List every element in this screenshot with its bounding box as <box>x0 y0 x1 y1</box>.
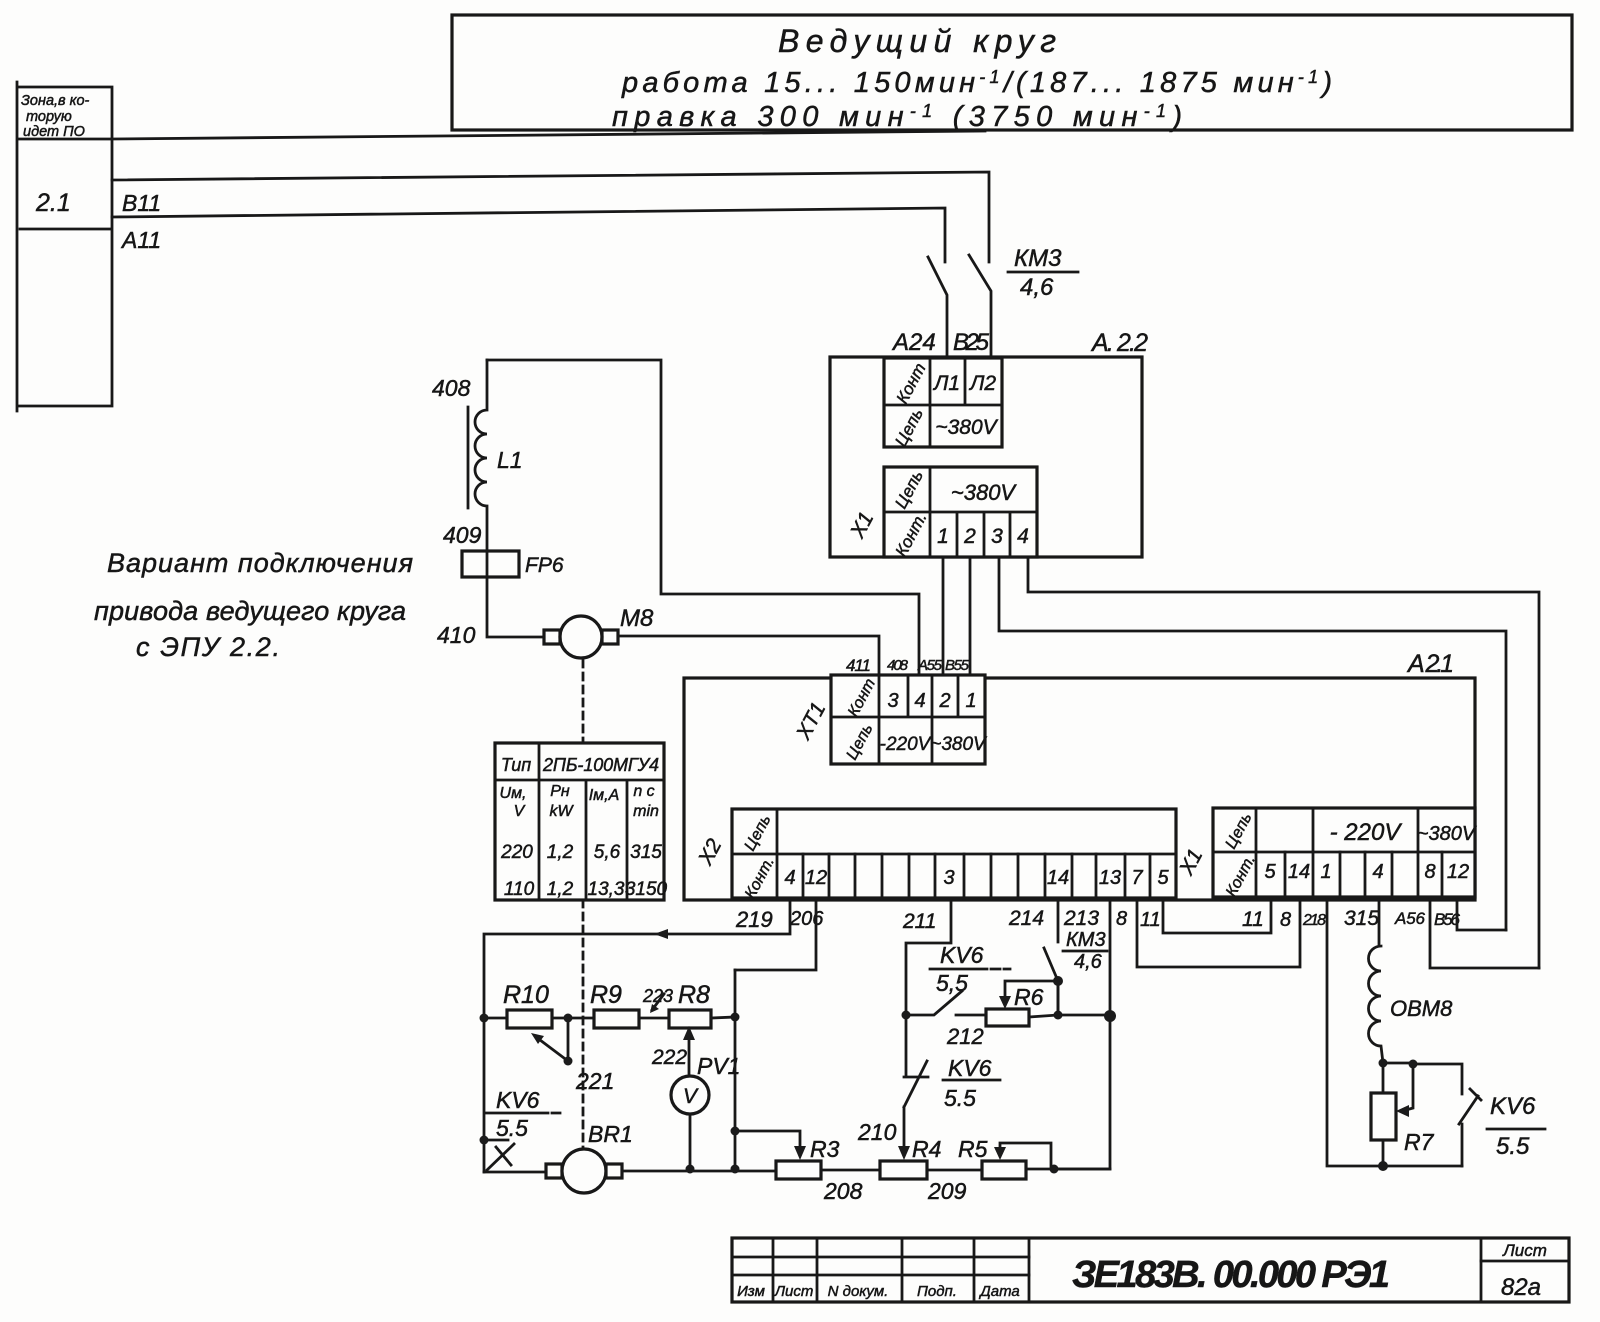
svg-text:ЗЕ183В. 00.000 РЭ1: ЗЕ183В. 00.000 РЭ1 <box>1072 1254 1390 1296</box>
svg-text:3: 3 <box>887 690 898 712</box>
svg-text:FP6: FP6 <box>525 554 564 577</box>
svg-text:4: 4 <box>914 690 925 712</box>
svg-text:n c: n c <box>633 783 654 800</box>
svg-text:KV6: KV6 <box>948 1055 992 1081</box>
svg-text:А. 2.2: А. 2.2 <box>1090 329 1148 357</box>
svg-text:12: 12 <box>805 867 827 889</box>
svg-text:В25: В25 <box>953 329 990 356</box>
svg-text:408: 408 <box>432 375 471 401</box>
svg-text:410: 410 <box>437 622 476 648</box>
svg-text:7: 7 <box>1131 867 1143 889</box>
svg-text:привода ведущего круга: привода ведущего круга <box>94 596 406 626</box>
svg-text:210: 210 <box>857 1119 897 1145</box>
svg-text:Тип: Тип <box>501 755 531 775</box>
svg-text:12: 12 <box>1447 861 1469 883</box>
svg-text:209: 209 <box>927 1178 967 1204</box>
svg-text:4: 4 <box>1017 525 1029 548</box>
svg-text:214: 214 <box>1008 907 1044 930</box>
svg-text:3: 3 <box>943 867 954 889</box>
svg-text:221: 221 <box>575 1068 614 1094</box>
svg-text:BR1: BR1 <box>588 1121 633 1147</box>
svg-text:Дата: Дата <box>978 1283 1020 1300</box>
svg-text:2: 2 <box>963 525 976 548</box>
svg-text:1,2: 1,2 <box>547 842 574 863</box>
svg-text:13: 13 <box>1099 867 1121 889</box>
svg-text:Рн: Рн <box>550 783 570 800</box>
svg-text:R4: R4 <box>912 1136 941 1162</box>
svg-text:4: 4 <box>1372 861 1383 883</box>
svg-text:5: 5 <box>1264 861 1276 883</box>
svg-text:1: 1 <box>1320 861 1331 883</box>
svg-text:Uм,: Uм, <box>500 785 527 802</box>
svg-text:R7: R7 <box>1404 1129 1435 1155</box>
svg-text:Л1: Л1 <box>932 372 960 395</box>
svg-text:R3: R3 <box>810 1136 840 1162</box>
svg-text:Изм: Изм <box>737 1283 765 1300</box>
svg-text:3150: 3150 <box>625 879 668 900</box>
svg-text:315: 315 <box>630 842 662 863</box>
svg-text:3: 3 <box>991 525 1003 548</box>
svg-text:А55: А55 <box>917 657 943 674</box>
svg-text:212: 212 <box>946 1024 984 1049</box>
svg-text:206: 206 <box>789 908 824 930</box>
svg-text:8: 8 <box>1116 908 1127 930</box>
svg-text:8: 8 <box>1280 909 1291 931</box>
svg-text:V: V <box>683 1085 699 1108</box>
svg-text:14: 14 <box>1047 867 1069 889</box>
svg-text:М8: М8 <box>620 605 654 632</box>
svg-text:211: 211 <box>902 910 936 933</box>
svg-text:11: 11 <box>1242 908 1264 931</box>
svg-text:Зона,в ко-: Зона,в ко- <box>21 93 90 109</box>
svg-text:1,2: 1,2 <box>547 879 574 900</box>
svg-text:~380V: ~380V <box>1417 823 1477 845</box>
svg-text:2.1: 2.1 <box>35 189 71 217</box>
svg-text:219: 219 <box>735 907 773 932</box>
svg-text:4,6: 4,6 <box>1074 951 1103 973</box>
svg-text:R10: R10 <box>503 981 549 1009</box>
svg-text:kW: kW <box>549 803 574 820</box>
svg-text:Лист: Лист <box>774 1283 814 1300</box>
svg-text:~380V: ~380V <box>951 480 1018 505</box>
svg-text:L1: L1 <box>497 447 523 473</box>
svg-text:1: 1 <box>965 690 976 712</box>
svg-text:11: 11 <box>1140 909 1161 931</box>
svg-text:220: 220 <box>500 842 533 863</box>
svg-text:А56: А56 <box>1394 909 1426 928</box>
svg-text:2: 2 <box>938 690 950 712</box>
svg-text:В11: В11 <box>122 190 161 216</box>
svg-text:Л2: Л2 <box>968 372 996 395</box>
svg-text:409: 409 <box>443 522 482 548</box>
svg-text:R9: R9 <box>590 981 622 1009</box>
svg-text:R5: R5 <box>958 1136 988 1162</box>
svg-text:213: 213 <box>1063 907 1099 930</box>
svg-text:315: 315 <box>1344 907 1379 930</box>
svg-text:208: 208 <box>823 1178 863 1204</box>
svg-text:5,5: 5,5 <box>936 970 968 996</box>
svg-text:PV1: PV1 <box>697 1053 740 1079</box>
svg-text:~380V: ~380V <box>930 734 988 755</box>
svg-text:KV6: KV6 <box>1490 1093 1536 1120</box>
svg-text:В55: В55 <box>945 657 970 674</box>
svg-text:5: 5 <box>1157 867 1169 889</box>
svg-text:110: 110 <box>504 879 535 900</box>
svg-text:А 2.1: А 2.1 <box>1406 650 1454 678</box>
svg-text:13,3: 13,3 <box>588 879 625 900</box>
svg-text:1: 1 <box>937 525 949 548</box>
svg-text:V: V <box>514 803 526 820</box>
svg-text:5.5: 5.5 <box>944 1085 976 1111</box>
svg-text:408: 408 <box>887 657 909 674</box>
svg-text:KV6: KV6 <box>940 942 984 968</box>
svg-text:Вариант подключения: Вариант подключения <box>107 548 413 578</box>
svg-text:А24: А24 <box>891 329 936 356</box>
svg-text:Iм,А: Iм,А <box>589 787 620 804</box>
svg-text:4,6: 4,6 <box>1020 274 1054 301</box>
svg-text:КМ3: КМ3 <box>1066 929 1106 951</box>
svg-text:8: 8 <box>1424 861 1435 883</box>
svg-text:5.5: 5.5 <box>1496 1133 1530 1160</box>
svg-text:R8: R8 <box>678 981 710 1009</box>
svg-text:идет ПО: идет ПО <box>23 124 85 140</box>
svg-text:ОВМ8: ОВМ8 <box>1390 996 1453 1021</box>
svg-text:Подп.: Подп. <box>917 1283 957 1300</box>
svg-text:218: 218 <box>1302 912 1326 929</box>
svg-text:Лист: Лист <box>1502 1241 1547 1260</box>
svg-text:- 220V: - 220V <box>1330 819 1403 846</box>
svg-text:222: 222 <box>651 1046 687 1069</box>
svg-text:KV6: KV6 <box>496 1087 540 1113</box>
svg-text:~380V: ~380V <box>935 416 998 439</box>
svg-text:-220V: -220V <box>880 734 933 755</box>
svg-text:2ПБ-100МГУ4: 2ПБ-100МГУ4 <box>542 755 659 775</box>
svg-text:4: 4 <box>784 867 795 889</box>
svg-text:А11: А11 <box>120 227 161 253</box>
svg-text:N докум.: N докум. <box>828 1283 889 1300</box>
svg-text:14: 14 <box>1288 861 1310 883</box>
svg-text:411: 411 <box>846 656 871 675</box>
svg-text:R6: R6 <box>1014 984 1044 1010</box>
svg-text:5.5: 5.5 <box>496 1115 528 1141</box>
svg-text:min: min <box>633 803 659 820</box>
svg-text:КМ3: КМ3 <box>1014 245 1062 272</box>
svg-text:с ЭПУ 2.2.: с ЭПУ 2.2. <box>136 632 280 662</box>
svg-text:5,6: 5,6 <box>594 842 621 863</box>
svg-text:82а: 82а <box>1501 1274 1541 1301</box>
svg-text:торую: торую <box>26 109 72 125</box>
